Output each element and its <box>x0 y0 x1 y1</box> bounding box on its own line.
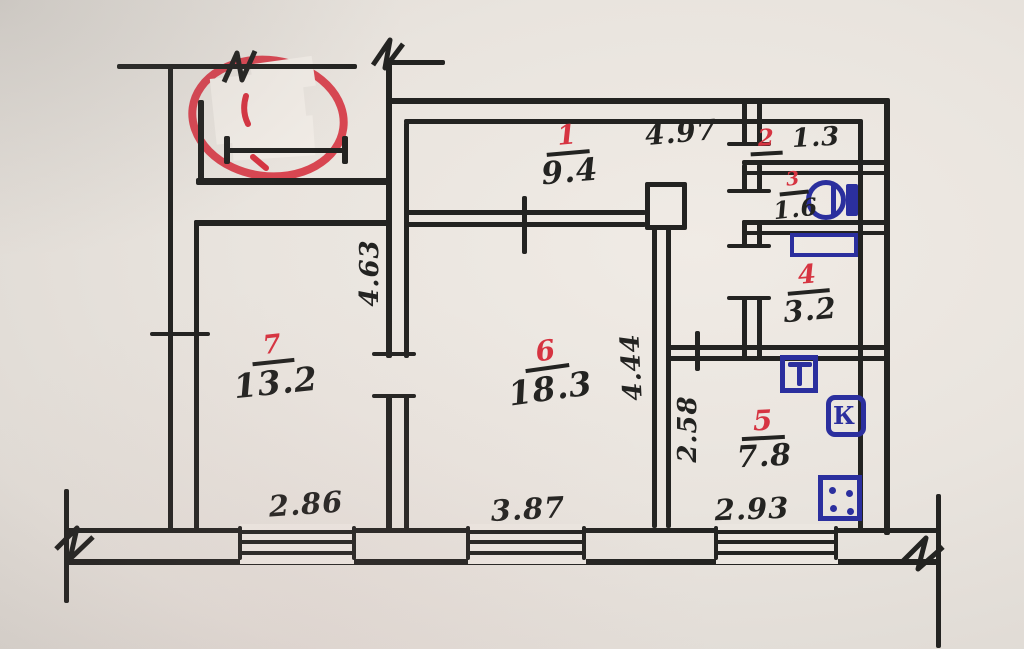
window-right-line1 <box>716 530 838 534</box>
dimension-kitchen-vertical: 2.58 <box>673 381 703 477</box>
floor-plan-canvas: К 1 9.4 2 1.3 3 1.6 4 3.2 5 7.8 6 18.3 7… <box>0 0 1024 649</box>
door-tick-room4-a <box>727 244 771 248</box>
wall-left-inner <box>194 220 199 532</box>
room-area: 1.3 <box>791 123 841 155</box>
wall-kitchen-top-b <box>669 356 887 361</box>
window-center-line3 <box>468 551 586 555</box>
window-center-line2 <box>468 540 586 544</box>
wall-right-inner <box>858 119 863 530</box>
window-right-end-b <box>834 526 838 560</box>
room-area: 7.8 <box>736 439 793 476</box>
room-label-6: 6 18.3 <box>501 330 595 413</box>
window-center-end-b <box>582 526 586 560</box>
room-label-4: 4 3.2 <box>779 260 838 330</box>
room-label-2: 2 1.3 <box>749 123 841 158</box>
vent-shaft <box>645 182 687 230</box>
room-label-3: 3 1.6 <box>769 168 819 225</box>
window-right-end-a <box>714 526 718 560</box>
window-left-end-a <box>238 526 242 560</box>
dimension-center-vertical: 4.44 <box>615 318 650 415</box>
wall-strip-inner-4 <box>757 296 762 360</box>
wall-kitchen-top-a <box>669 345 887 350</box>
balcony-door-line <box>226 148 348 153</box>
room-label-1: 1 9.4 <box>537 120 600 194</box>
room-label-5: 5 7.8 <box>734 405 793 477</box>
wall-room7-room6-outer-lower <box>386 396 392 532</box>
wall-room2-room3-b <box>742 171 888 175</box>
door-tick-room4-b <box>727 296 771 300</box>
toilet-stem <box>797 362 802 386</box>
window-center-end-a <box>466 526 470 560</box>
wall-left-outer <box>168 64 173 532</box>
tick-left-wall <box>150 332 210 336</box>
room-area: 9.4 <box>540 153 600 193</box>
room-number: 2 <box>749 126 782 157</box>
room-area: 1.6 <box>772 193 819 225</box>
balcony-left-wall <box>198 100 204 182</box>
dimension-window-center: 3.87 <box>477 489 579 528</box>
dimension-window-left: 2.86 <box>255 484 357 525</box>
wall-room7-room6-inner-lower <box>404 396 409 532</box>
water-heater-label: К <box>833 401 856 430</box>
wall-bottom-left-end <box>64 489 69 603</box>
wall-room7-room6-inner-upper <box>404 122 409 358</box>
stove-burner <box>846 490 853 497</box>
door-tick-hall <box>522 196 527 254</box>
wall-strip-outer-4 <box>742 296 747 360</box>
wall-neighbor-top <box>117 64 357 69</box>
bathtub-icon <box>790 233 858 257</box>
window-right-line3 <box>716 551 838 555</box>
door-tick-room7-b <box>372 394 416 398</box>
washbasin-tap <box>831 184 836 217</box>
stove-icon <box>818 475 862 521</box>
wall-bottom-right-end <box>936 494 941 648</box>
door-tick-room3 <box>727 189 771 193</box>
door-tick-kitchen <box>695 331 700 371</box>
room-number: 4 <box>785 260 830 296</box>
balcony-door-tick-right <box>342 136 348 164</box>
window-center-line1 <box>468 530 586 534</box>
room-area: 3.2 <box>782 292 838 330</box>
door-tick-room7 <box>372 352 416 356</box>
room-number: 1 <box>544 120 590 157</box>
dimension-window-right: 2.93 <box>701 490 802 527</box>
window-left-line3 <box>240 551 354 555</box>
stove-burner <box>830 505 837 512</box>
window-right-line2 <box>716 540 838 544</box>
window-left-end-b <box>352 526 356 560</box>
balcony-door-tick-left <box>224 136 230 164</box>
wall-center-b <box>666 228 671 528</box>
wall-strip-outer-1 <box>742 100 747 146</box>
wall-center-a <box>652 228 657 528</box>
room-label-7: 7 13.2 <box>229 328 320 407</box>
window-left-line2 <box>240 540 354 544</box>
wall-top-stub <box>390 60 445 65</box>
stove-burner <box>829 487 836 494</box>
wall-top-outer <box>386 98 888 104</box>
stove-burner <box>847 508 854 515</box>
washbasin-wall-mount <box>846 184 858 216</box>
balcony-bottom-wall <box>196 178 392 185</box>
wall-room2-room3-a <box>742 160 888 165</box>
room-number: 5 <box>740 405 785 442</box>
window-left-line1 <box>240 530 354 534</box>
dimension-left-vertical: 4.63 <box>355 225 385 321</box>
